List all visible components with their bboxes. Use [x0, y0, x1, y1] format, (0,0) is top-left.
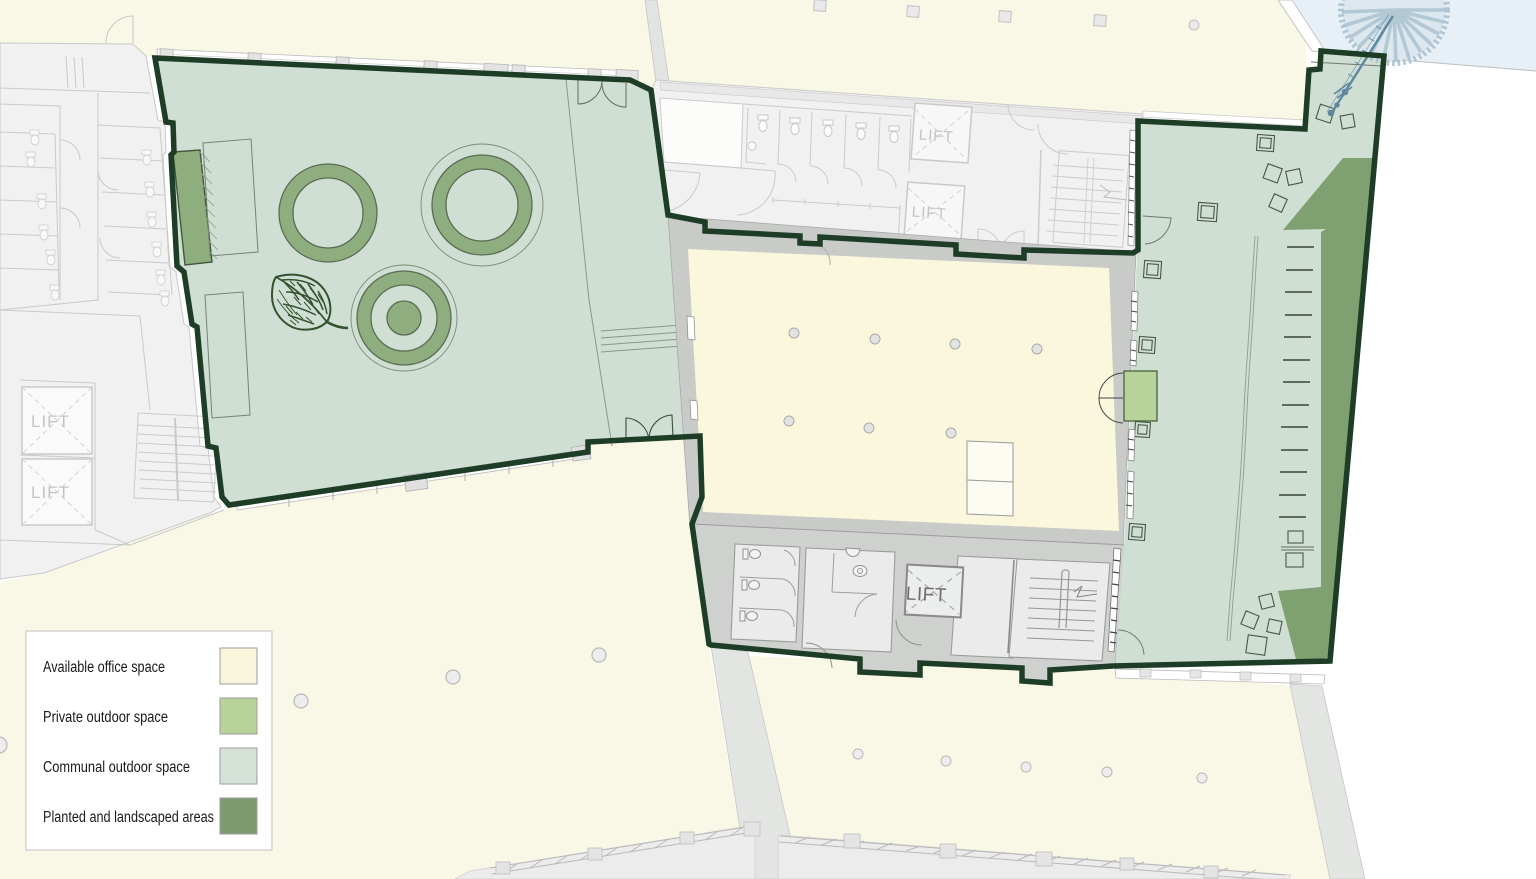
svg-text:LIFT: LIFT — [31, 412, 70, 431]
svg-text:Planted and landscaped areas: Planted and landscaped areas — [43, 809, 214, 826]
svg-text:LIFT: LIFT — [911, 203, 947, 222]
svg-text:LIFT: LIFT — [905, 584, 947, 607]
svg-text:LIFT: LIFT — [31, 483, 70, 502]
svg-text:Private outdoor space: Private outdoor space — [43, 709, 168, 726]
svg-text:Communal outdoor space: Communal outdoor space — [43, 759, 190, 776]
svg-text:LIFT: LIFT — [918, 126, 954, 145]
svg-text:Available office space: Available office space — [43, 659, 165, 676]
